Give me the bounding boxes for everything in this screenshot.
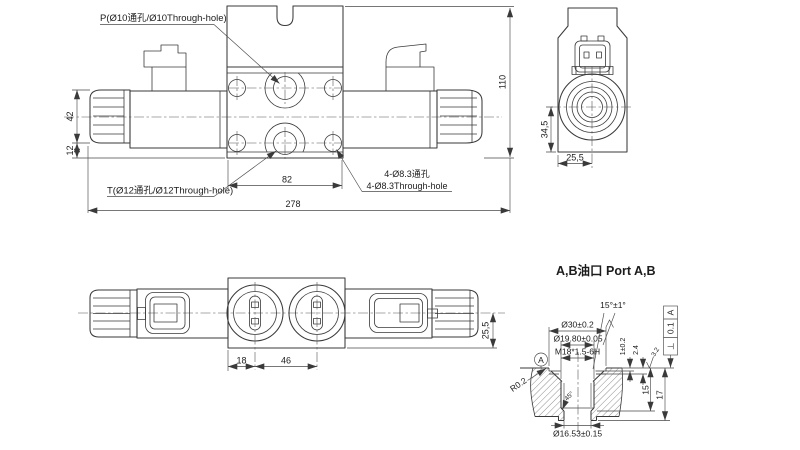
technical-drawing: 42 12 110 278 82 P(Ø10通孔/Ø10Through-hole…	[0, 0, 800, 450]
dim-chamfer-45: 45°	[563, 390, 576, 403]
hole-centerlines	[229, 72, 341, 159]
counterbore-lines	[549, 368, 606, 374]
datum-label: A	[538, 355, 544, 365]
hatch-left	[531, 368, 564, 421]
gdt-datum: A	[665, 309, 675, 315]
connector-pin	[584, 52, 589, 58]
port-detail-view: A,B油口 Port A,B Ø30±0.2 Ø19.80±0.05 M18*1…	[508, 263, 677, 439]
dim-corner-radius: R0.2	[508, 375, 529, 394]
top-view: 18 46 25,5	[78, 278, 505, 371]
ext-lines-bore	[564, 421, 591, 429]
connector-pin	[597, 52, 602, 58]
right-cap-ribs	[440, 90, 477, 143]
gdt-symbol: ⊥	[665, 342, 675, 349]
left-connector	[144, 45, 186, 91]
hatch-right	[591, 368, 622, 421]
right-coil	[343, 91, 437, 148]
connector-tabs	[581, 36, 604, 41]
dim-82: 82	[282, 175, 292, 185]
dim-25-5-end: 25,5	[566, 153, 584, 163]
gdt-tolerance: 0.1	[665, 322, 675, 334]
dim-12: 12	[65, 145, 75, 155]
roughness-icon	[647, 357, 654, 369]
left-coil	[130, 91, 227, 148]
dim-thread: M18*1.5-6H	[555, 347, 600, 357]
dim-46: 46	[281, 356, 291, 366]
bottom-faces	[535, 417, 619, 421]
dim-chamfer-angle: 15°±1°	[600, 300, 626, 310]
end-view: 34,5 25,5	[540, 8, 634, 168]
p-leader	[214, 25, 280, 84]
top-left-cap-ribs	[93, 290, 130, 337]
front-view: 42 12 110 278 82 P(Ø10通孔/Ø10Through-hole…	[64, 6, 514, 213]
port-detail-title: A,B油口 Port A,B	[556, 263, 656, 278]
dim-land-depth: 1±0.2	[620, 338, 627, 356]
bolt-holes-label-en: 4-Ø8.3Through-hole	[366, 181, 447, 191]
dim-step-depth: 2.4	[633, 345, 640, 355]
drawing-canvas: 42 12 110 278 82 P(Ø10通孔/Ø10Through-hole…	[0, 0, 800, 450]
dim-278: 278	[285, 199, 300, 209]
bolt-holes-label-cn: 4-Ø8.3通孔	[384, 169, 430, 179]
dim-total-depth: 17	[655, 390, 665, 400]
dim-18: 18	[236, 356, 246, 366]
top-left-connector-stub	[138, 308, 146, 320]
p-port-label: P(Ø10通孔/Ø10Through-hole)	[100, 13, 227, 24]
dim-34-5: 34,5	[540, 121, 550, 139]
dim-counterbore-dia: Ø30±0.2	[561, 320, 594, 330]
right-connector	[386, 44, 434, 91]
dim-42: 42	[65, 111, 75, 121]
left-cap-ribs	[93, 90, 124, 143]
dim-pilot-dia: Ø19.80±0.05	[553, 334, 602, 344]
top-left-coil	[137, 289, 228, 338]
roughness-value: 3.2	[650, 346, 661, 358]
valve-body	[227, 6, 343, 67]
dim-110: 110	[498, 75, 508, 89]
dim-bore-dia: Ø16.53±0.15	[553, 429, 602, 439]
dim-25-5-top: 25,5	[481, 322, 491, 340]
t-port-label: T(Ø12通孔/Ø12Through-hole)	[107, 186, 233, 197]
dim-thread-depth: 15	[641, 385, 651, 395]
top-right-cap-ribs	[435, 290, 474, 337]
